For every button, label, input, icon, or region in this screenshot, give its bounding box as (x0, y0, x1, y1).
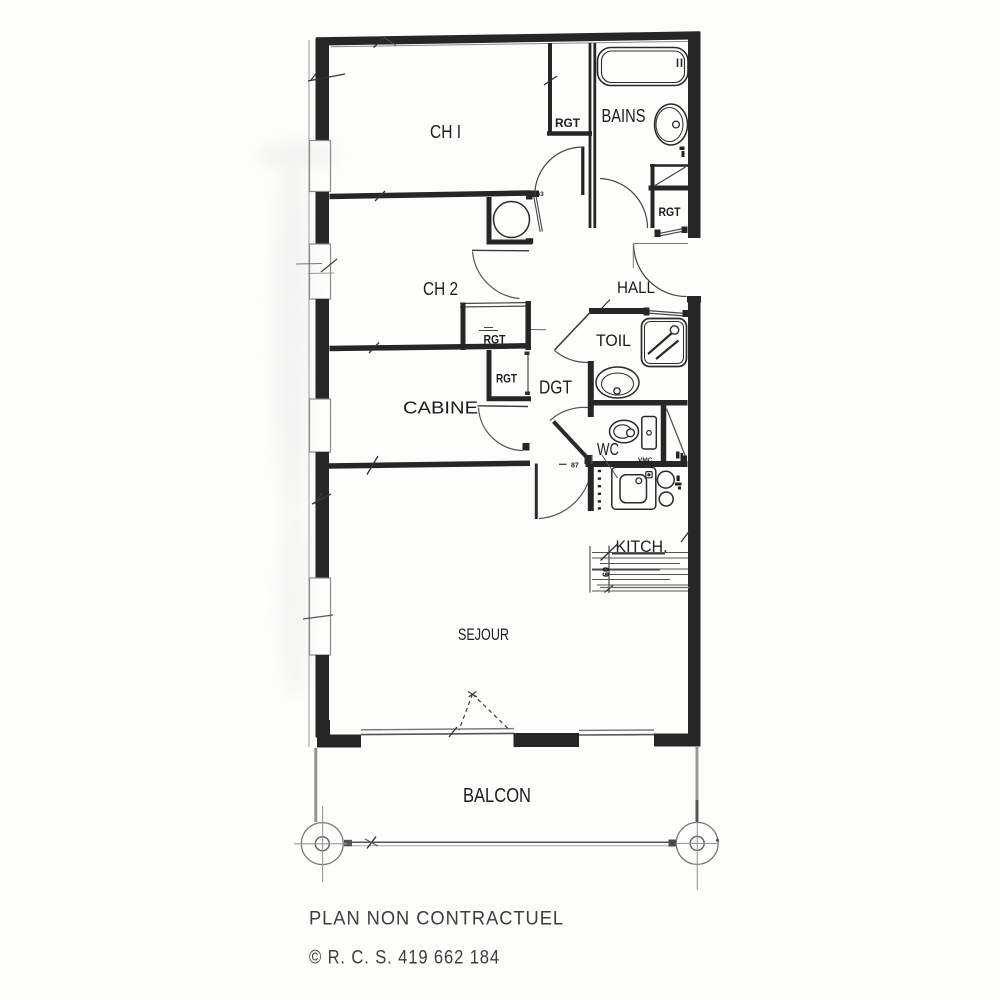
svg-text:HALL: HALL (617, 278, 655, 297)
svg-text:DGT: DGT (539, 378, 572, 398)
svg-text:CH I: CH I (430, 122, 461, 142)
svg-text:TOIL: TOIL (596, 331, 631, 350)
svg-text:SEJOUR: SEJOUR (458, 625, 509, 644)
svg-text:RGT: RGT (484, 333, 507, 347)
svg-text:60: 60 (601, 567, 611, 577)
svg-text:© R. C. S. 419 662 184: © R. C. S. 419 662 184 (309, 948, 500, 969)
svg-text:PLAN NON CONTRACTUEL: PLAN NON CONTRACTUEL (309, 909, 564, 930)
svg-text:RGT: RGT (659, 205, 682, 219)
svg-text:BALCON: BALCON (463, 785, 531, 807)
svg-text:VMC: VMC (638, 457, 653, 464)
svg-text:63: 63 (537, 191, 545, 198)
svg-text:KITCH.: KITCH. (616, 537, 668, 556)
svg-text:RGT: RGT (496, 372, 518, 386)
svg-text:WC: WC (597, 439, 619, 459)
svg-text:87: 87 (571, 463, 579, 470)
svg-text:CABINE: CABINE (403, 398, 478, 418)
svg-text:CH 2: CH 2 (423, 279, 458, 299)
svg-text:RGT: RGT (555, 116, 581, 130)
svg-text:BAINS: BAINS (602, 106, 646, 126)
